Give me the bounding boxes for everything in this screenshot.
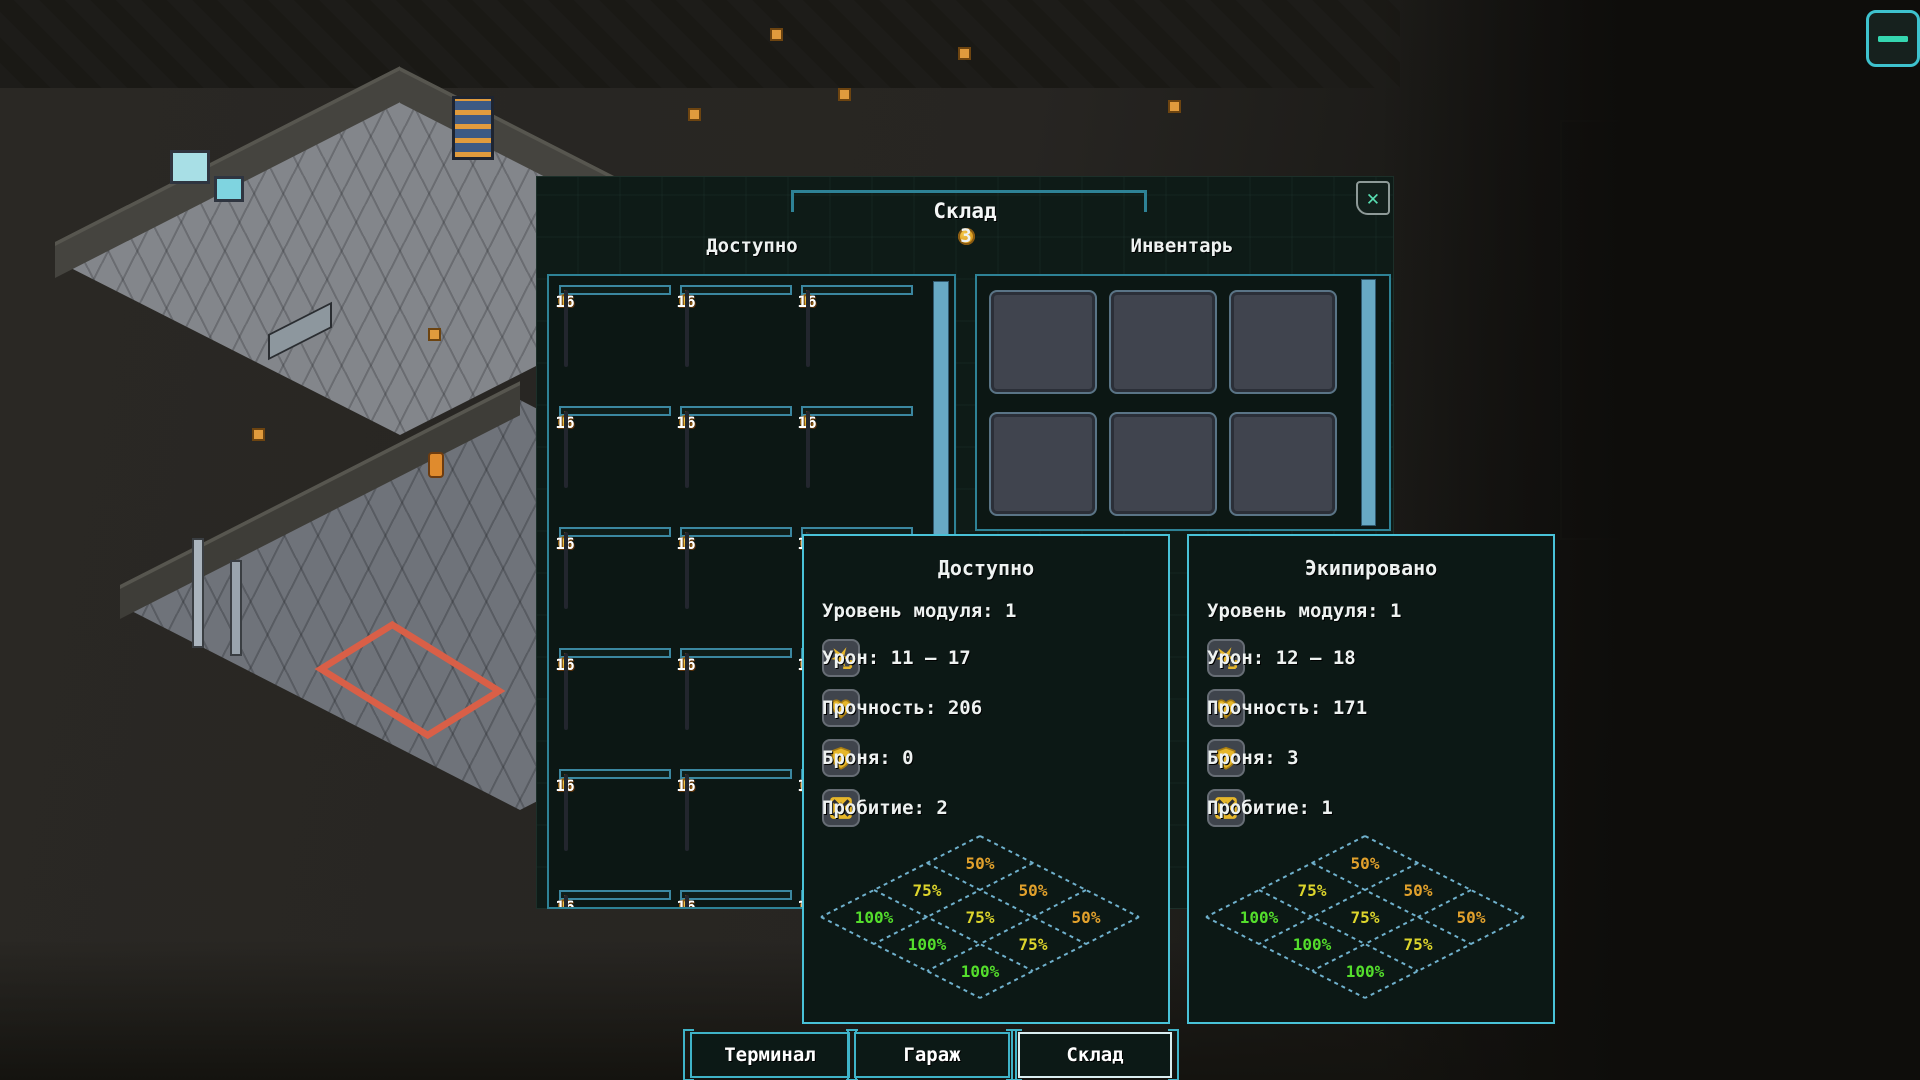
svg-text:75%: 75%: [1298, 881, 1327, 900]
item-slot: 1: [806, 290, 810, 367]
stat-label: Пробитие: 1: [1207, 797, 1333, 819]
store-item-minigun-turret[interactable]: 161: [680, 769, 792, 779]
store-item-minigun-turret[interactable]: 161: [680, 648, 792, 658]
inventory-slot[interactable]: [1229, 412, 1337, 516]
game-screen: Склад ✕ Доступно 3 Инвентарь 16116116116…: [0, 0, 1920, 1080]
svg-text:75%: 75%: [1019, 935, 1048, 954]
item-slot: 1: [685, 774, 689, 851]
panel-title: Экипировано: [1189, 556, 1553, 580]
svg-text:50%: 50%: [1457, 908, 1486, 927]
inventory-slot[interactable]: [1109, 412, 1217, 516]
item-slot: 1: [685, 411, 689, 488]
svg-text:50%: 50%: [1351, 854, 1380, 873]
store-item-walker-module[interactable]: 161: [801, 406, 913, 416]
svg-text:100%: 100%: [1293, 935, 1332, 954]
stat-label: Урон: 11 – 17: [822, 647, 971, 669]
svg-text:100%: 100%: [1346, 962, 1385, 981]
stat-label: Броня: 3: [1207, 747, 1299, 769]
stats-panel-available: ДоступноУровень модуля: 1Урон: 11 – 17Пр…: [802, 534, 1170, 1024]
item-slot: 1: [564, 653, 568, 730]
inventory-slot[interactable]: [1229, 290, 1337, 394]
item-slot: 1: [685, 895, 689, 909]
close-icon: ✕: [1367, 188, 1380, 209]
wall-lamp: [252, 428, 265, 441]
stat-label: Урон: 12 – 18: [1207, 647, 1356, 669]
button-terminal[interactable]: Терминал: [690, 1032, 850, 1078]
item-slot: 1: [564, 895, 568, 909]
wall-lamp: [838, 88, 851, 101]
item-slot: 1: [564, 532, 568, 609]
svg-text:100%: 100%: [908, 935, 947, 954]
bottom-bar: ТерминалГаражСклад: [0, 1032, 1920, 1080]
item-slot: 1: [564, 290, 568, 367]
svg-text:50%: 50%: [1072, 908, 1101, 927]
dialog-title: Склад: [537, 199, 1393, 223]
svg-text:50%: 50%: [966, 854, 995, 873]
store-item-minigun-turret[interactable]: 161: [680, 527, 792, 537]
inventory-slot[interactable]: [989, 290, 1097, 394]
module-level: Уровень модуля: 1: [822, 600, 1016, 622]
store-item-covered[interactable]: 161: [559, 890, 671, 900]
svg-text:75%: 75%: [1404, 935, 1433, 954]
item-slot: 1: [685, 290, 689, 367]
svg-text:50%: 50%: [1404, 881, 1433, 900]
stat-label: Пробитие: 2: [822, 797, 948, 819]
svg-text:100%: 100%: [961, 962, 1000, 981]
store-item-minigun-turret[interactable]: 161: [559, 648, 671, 658]
available-scrollbar[interactable]: [933, 281, 949, 535]
svg-text:75%: 75%: [1351, 908, 1380, 927]
crane-post: [230, 560, 242, 656]
module-level: Уровень модуля: 1: [1207, 600, 1401, 622]
wall-strip: [0, 0, 1400, 88]
svg-text:75%: 75%: [913, 881, 942, 900]
store-item-missile-turret-red[interactable]: 161: [559, 406, 671, 416]
store-item-covered[interactable]: 161: [680, 890, 792, 900]
item-slot: 1: [564, 774, 568, 851]
available-header: Доступно: [537, 235, 967, 257]
inventory-grid: [975, 274, 1391, 531]
wall-lamp: [1168, 100, 1181, 113]
stats-panel-equipped: ЭкипированоУровень модуля: 1Урон: 12 – 1…: [1187, 534, 1555, 1024]
button-warehouse[interactable]: Склад: [1018, 1032, 1172, 1078]
stat-label: Прочность: 206: [822, 697, 982, 719]
inventory-slot[interactable]: [989, 412, 1097, 516]
crane-post: [192, 538, 204, 648]
store-item-rocket-pod[interactable]: 161: [559, 527, 671, 537]
panel-title: Доступно: [804, 556, 1168, 580]
store-item-assault-drone[interactable]: 161: [801, 285, 913, 295]
stat-label: Прочность: 171: [1207, 697, 1367, 719]
button-garage[interactable]: Гараж: [854, 1032, 1010, 1078]
inventory-slot[interactable]: [1109, 290, 1217, 394]
item-slot: 1: [564, 411, 568, 488]
inventory-scrollbar[interactable]: [1361, 279, 1376, 526]
store-item-missile-launcher-orange[interactable]: 161: [559, 769, 671, 779]
svg-text:100%: 100%: [855, 908, 894, 927]
menu-button[interactable]: [1866, 10, 1920, 67]
item-slot: 1: [685, 532, 689, 609]
close-button[interactable]: ✕: [1356, 181, 1390, 215]
wall-lamp: [688, 108, 701, 121]
console-machine: [214, 176, 244, 202]
store-item-assault-drone[interactable]: 161: [680, 285, 792, 295]
console-machine: [170, 150, 210, 184]
character: [428, 452, 444, 478]
svg-text:100%: 100%: [1240, 908, 1279, 927]
stat-label: Броня: 0: [822, 747, 914, 769]
wall-lamp: [770, 28, 783, 41]
svg-text:75%: 75%: [966, 908, 995, 927]
item-slot: 1: [806, 411, 810, 488]
store-item-heavy-mech-orange[interactable]: 161: [680, 406, 792, 416]
hamburger-icon: [1878, 36, 1908, 42]
store-item-assault-drone[interactable]: 161: [559, 285, 671, 295]
wall-lamp: [958, 47, 971, 60]
wall-lamp: [428, 328, 441, 341]
vending-machine: [452, 96, 494, 160]
svg-text:50%: 50%: [1019, 881, 1048, 900]
inventory-header: Инвентарь: [969, 235, 1395, 257]
item-slot: 1: [685, 653, 689, 730]
